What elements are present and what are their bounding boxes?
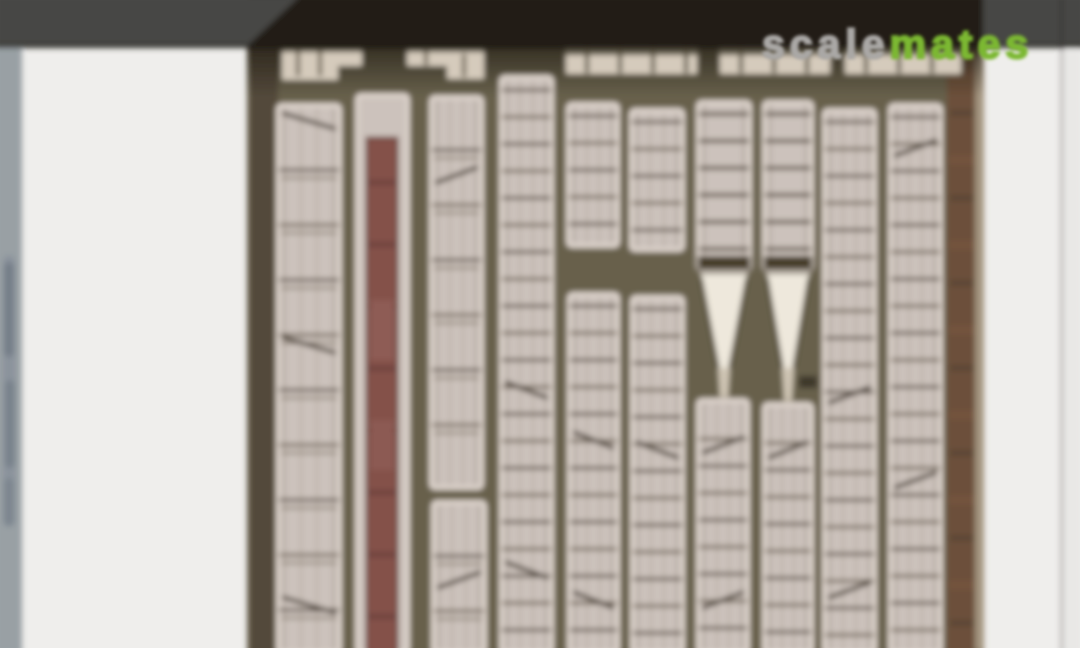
svg-text:scalemates: scalemates <box>762 21 1033 67</box>
